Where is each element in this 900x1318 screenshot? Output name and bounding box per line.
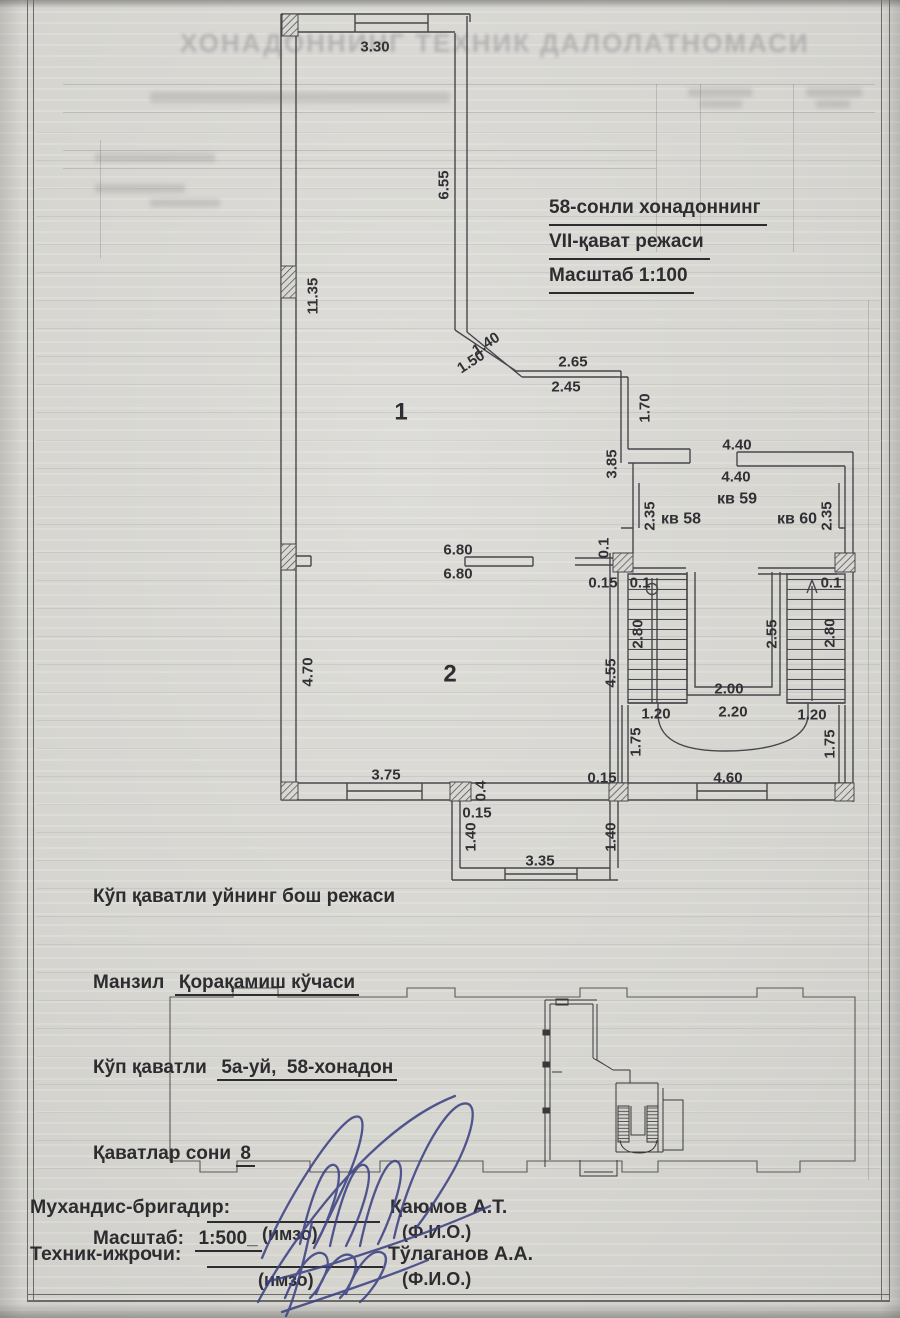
handwritten-signatures xyxy=(0,0,900,1318)
scanned-floor-plan-document: ХОНАДОННИНГ ТЕХНИК ДАЛОЛАТНОМАСИ xyxy=(0,0,900,1318)
signature-ink xyxy=(258,1096,490,1316)
